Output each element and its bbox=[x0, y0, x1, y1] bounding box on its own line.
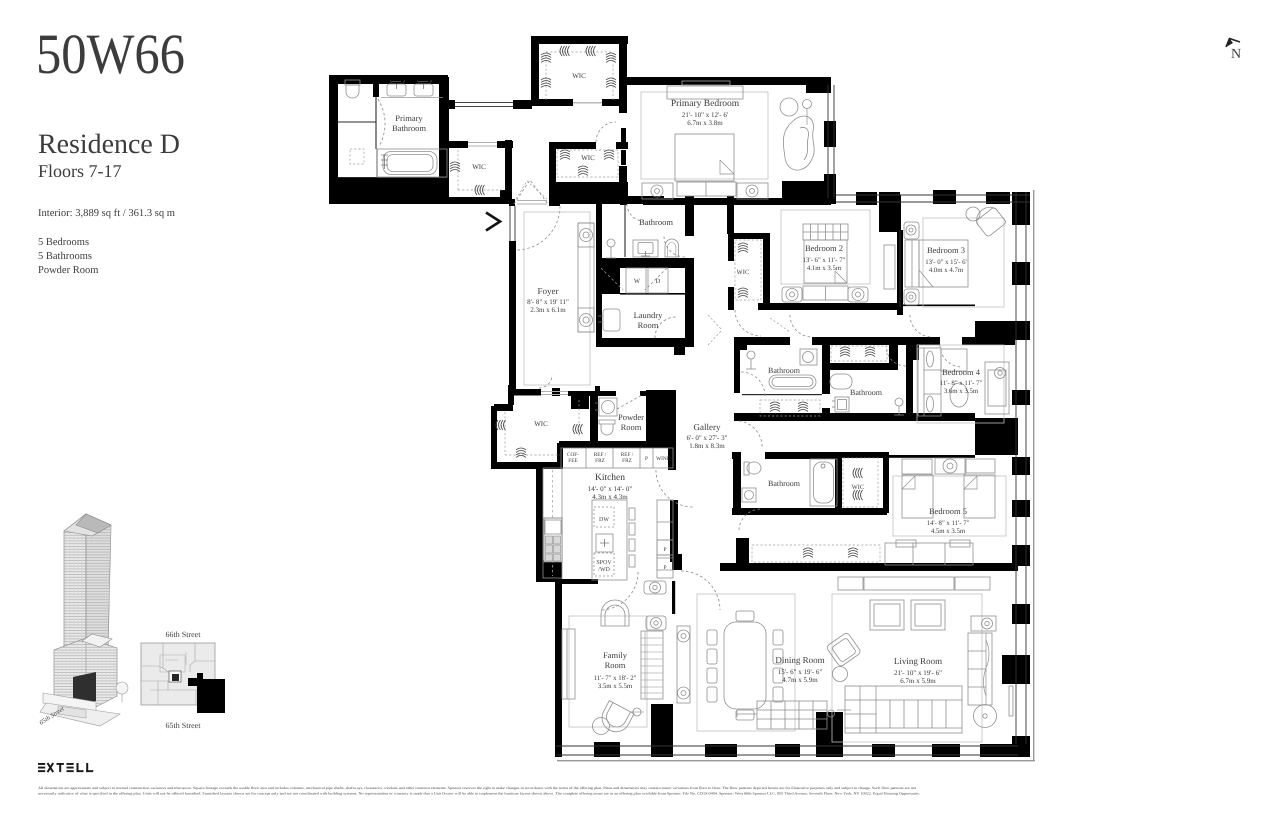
svg-text:Bedroom 3: Bedroom 3 bbox=[927, 245, 965, 255]
svg-text:WINE: WINE bbox=[656, 456, 670, 462]
svg-text:Bathroom: Bathroom bbox=[392, 123, 426, 133]
svg-text:Foyer: Foyer bbox=[538, 286, 559, 296]
svg-text:Bedroom 2: Bedroom 2 bbox=[805, 243, 843, 253]
svg-text:W: W bbox=[634, 278, 641, 285]
svg-text:Interior: 3,889 sq ft / 361.3: Interior: 3,889 sq ft / 361.3 sq m bbox=[38, 208, 175, 219]
svg-text:15'- 6" x 19'- 6": 15'- 6" x 19'- 6" bbox=[778, 668, 823, 676]
svg-text:P: P bbox=[663, 565, 666, 571]
svg-text:Living Room: Living Room bbox=[894, 656, 942, 666]
svg-text:6.7m x 3.8m: 6.7m x 3.8m bbox=[687, 119, 723, 127]
svg-text:4.1m x 3.5m: 4.1m x 3.5m bbox=[807, 265, 842, 272]
svg-text:All dimensions are approximate: All dimensions are approximate and subje… bbox=[38, 786, 916, 790]
svg-text:8'- 8" x 19' 11": 8'- 8" x 19' 11" bbox=[527, 298, 569, 306]
svg-text:WIC: WIC bbox=[852, 484, 865, 491]
svg-text:4.5m x 3.5m: 4.5m x 3.5m bbox=[931, 528, 966, 535]
svg-text:3.6m x 3.5m: 3.6m x 3.5m bbox=[944, 388, 979, 395]
svg-text:Residence D: Residence D bbox=[38, 129, 180, 160]
svg-text:necessarily indicative of what: necessarily indicative of what is specif… bbox=[38, 792, 920, 796]
svg-text:21'- 10" x 12'- 6': 21'- 10" x 12'- 6' bbox=[682, 111, 728, 119]
svg-text:Kitchen: Kitchen bbox=[595, 473, 625, 483]
svg-text:Primary: Primary bbox=[395, 113, 423, 123]
svg-text:Room: Room bbox=[605, 660, 626, 670]
svg-text:3.5m x 5.5m: 3.5m x 5.5m bbox=[598, 683, 633, 690]
svg-text:4.7m x 5.9m: 4.7m x 5.9m bbox=[782, 676, 818, 684]
svg-text:P: P bbox=[645, 456, 648, 462]
svg-text:13'- 6" x 11'- 7": 13'- 6" x 11'- 7" bbox=[803, 257, 846, 264]
svg-text:11'- 8" x 11'- 7": 11'- 8" x 11'- 7" bbox=[940, 380, 983, 387]
svg-text:Bedroom 4: Bedroom 4 bbox=[942, 367, 981, 377]
svg-text:50W66: 50W66 bbox=[36, 23, 185, 86]
svg-text:Dining Room: Dining Room bbox=[775, 655, 824, 665]
svg-text:D: D bbox=[656, 278, 661, 285]
svg-text:21'- 10" x 19'- 6": 21'- 10" x 19'- 6" bbox=[894, 669, 942, 677]
svg-text:65th Street: 65th Street bbox=[166, 721, 202, 730]
svg-text:4.0m x 4.7m: 4.0m x 4.7m bbox=[929, 267, 964, 274]
svg-text:5 Bedrooms: 5 Bedrooms bbox=[38, 237, 89, 248]
svg-text:Powder Room: Powder Room bbox=[38, 265, 98, 276]
svg-text:Family: Family bbox=[603, 650, 628, 660]
svg-text:Room: Room bbox=[621, 422, 642, 432]
svg-text:14'- 8" x 11'- 7": 14'- 8" x 11'- 7" bbox=[927, 520, 970, 527]
svg-text:Gallery: Gallery bbox=[694, 422, 721, 432]
svg-text:Bathroom: Bathroom bbox=[639, 217, 673, 227]
svg-text:6'- 0" x 27'- 3": 6'- 0" x 27'- 3" bbox=[687, 434, 728, 442]
svg-text:4.3m x 4.3m: 4.3m x 4.3m bbox=[592, 493, 628, 501]
svg-text:WIC: WIC bbox=[737, 269, 750, 276]
svg-text:FRZ: FRZ bbox=[622, 458, 632, 464]
svg-text:WIC: WIC bbox=[581, 154, 595, 162]
svg-text:1.8m x 8.3m: 1.8m x 8.3m bbox=[689, 442, 725, 450]
svg-text:14'- 0" x 14'- 0": 14'- 0" x 14'- 0" bbox=[588, 485, 633, 493]
svg-text:FEE: FEE bbox=[568, 458, 577, 464]
svg-text:66th Street: 66th Street bbox=[166, 630, 202, 639]
svg-text:FRZ: FRZ bbox=[595, 458, 605, 464]
svg-text:Room: Room bbox=[638, 320, 659, 330]
svg-text:13'- 0" x 15'- 6': 13'- 0" x 15'- 6' bbox=[925, 259, 967, 266]
svg-text:Bedroom 5: Bedroom 5 bbox=[929, 506, 967, 516]
svg-text:Floors 7-17: Floors 7-17 bbox=[38, 161, 122, 181]
svg-text:Bathroom: Bathroom bbox=[850, 388, 883, 397]
svg-text:WIC: WIC bbox=[572, 72, 586, 80]
svg-text:DW: DW bbox=[599, 517, 609, 523]
svg-text:SPOV: SPOV bbox=[596, 560, 612, 566]
svg-text:WIC: WIC bbox=[534, 420, 548, 428]
svg-text:Bathroom: Bathroom bbox=[768, 366, 801, 375]
svg-text:Laundry: Laundry bbox=[634, 310, 664, 320]
svg-text:WIC: WIC bbox=[472, 163, 486, 171]
svg-text:Powder: Powder bbox=[618, 412, 644, 422]
svg-text:11'- 7" x 18'- 2": 11'- 7" x 18'- 2" bbox=[594, 675, 637, 682]
svg-text:6.7m x 5.9m: 6.7m x 5.9m bbox=[900, 677, 936, 685]
svg-text:2.3m x 6.1m: 2.3m x 6.1m bbox=[530, 306, 566, 314]
svg-text:5 Bathrooms: 5 Bathrooms bbox=[38, 251, 92, 262]
svg-text:/WD: /WD bbox=[598, 567, 610, 573]
svg-text:Bathroom: Bathroom bbox=[768, 479, 801, 488]
svg-text:N: N bbox=[1231, 47, 1241, 62]
svg-text:P: P bbox=[663, 547, 666, 553]
svg-text:Primary Bedroom: Primary Bedroom bbox=[671, 99, 740, 109]
